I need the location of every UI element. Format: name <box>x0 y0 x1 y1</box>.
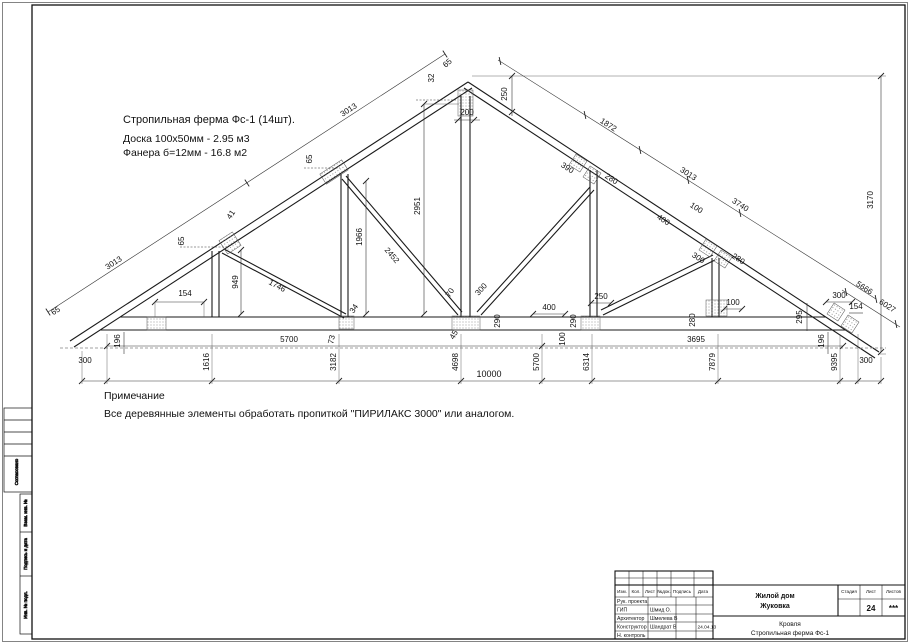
dim-label: 200 <box>460 108 474 117</box>
dim-label: 290 <box>493 314 502 328</box>
dim-label: 5666 <box>854 279 874 297</box>
dim-label: 7879 <box>708 353 717 371</box>
dim-label: 250 <box>500 87 509 101</box>
tb-role-3: Конструктор <box>617 625 647 631</box>
note-title: Примечание <box>104 390 165 402</box>
dim-label: 1872 <box>598 116 618 134</box>
dim-label: 400 <box>542 303 556 312</box>
dim-label: 65 <box>49 304 62 317</box>
dim-label: 2452 <box>383 246 402 266</box>
dim-label: 4698 <box>451 353 460 371</box>
dim-label: 949 <box>231 275 240 289</box>
tb-col-data: Дата <box>698 589 709 594</box>
tb-col-podpis: Подпись <box>673 589 692 594</box>
dim-label: 250 <box>594 292 608 301</box>
dim-label: 9395 <box>830 353 839 371</box>
dim-label: 100 <box>726 298 740 307</box>
dim-label: 65 <box>441 56 454 69</box>
dim-label: 300 <box>78 356 92 365</box>
title-block: Изм. Кол. Лист №док. Подпись Дата Рук. п… <box>615 571 905 639</box>
dim-label: 300 <box>473 281 489 297</box>
dim-label: 41 <box>225 208 238 221</box>
dim-label: 196 <box>113 334 122 348</box>
drawing-sheet: Согласовано Взам. инв. № Подпись и дата … <box>0 0 910 644</box>
tb-role-4: Н. контроль <box>617 633 646 639</box>
tb-name-1: Шмид О. <box>650 608 671 614</box>
margin-stamp-tables: Согласовано Взам. инв. № Подпись и дата … <box>4 408 32 634</box>
tb-project-line2: Жуковка <box>759 603 790 610</box>
tb-name-3: Шандрат В <box>650 625 677 631</box>
dim-label: 6027 <box>877 297 897 315</box>
tb-role-2: Архитектор <box>617 616 645 622</box>
note-body: Все деревянные элементы обработать пропи… <box>104 408 514 420</box>
dim-label: 3182 <box>329 353 338 371</box>
dim-label: 6314 <box>582 353 591 371</box>
dim-label: 295 <box>795 310 804 324</box>
dim-label: 3170 <box>866 191 875 209</box>
truss-drawing: Согласовано Взам. инв. № Подпись и дата … <box>0 0 910 644</box>
margin-label-agreed: Согласовано <box>14 458 19 485</box>
dim-label: 65 <box>177 236 186 245</box>
dim-label: 100 <box>558 332 567 346</box>
spec-note-line3: Фанера б=12мм - 16.8 м2 <box>123 147 247 159</box>
tb-sheets-total: *** <box>889 604 899 613</box>
tb-name-2: Шмелева В <box>650 616 678 622</box>
dim-label: 196 <box>817 334 826 348</box>
dim-label: 70 <box>444 286 457 299</box>
dim-label: 100 <box>688 200 705 215</box>
tb-col-izm: Изм. <box>617 589 627 594</box>
dim-label: 73 <box>326 334 337 345</box>
margin-label-podpis: Подпись и дата <box>23 538 28 570</box>
tb-stage-label: Стадия <box>841 589 857 594</box>
tb-role-0: Рук. проекта <box>617 599 647 605</box>
tb-col-ndok: №док. <box>657 589 670 594</box>
tb-drawing-line1: Кровля <box>779 621 801 628</box>
tb-date-3: 24.04.13 <box>698 625 717 631</box>
tb-role-1: ГИП <box>617 608 628 614</box>
dim-label: 154 <box>178 289 192 298</box>
spec-note-line1: Стропильная ферма Фс-1 (14шт). <box>123 114 295 126</box>
tb-sheet-label: Лист <box>866 589 877 594</box>
dim-label: 32 <box>427 73 436 82</box>
dim-label: 290 <box>569 314 578 328</box>
tb-drawing-line2: Стропильная ферма Фс-1 <box>751 630 830 637</box>
node-plates <box>147 90 859 333</box>
tb-col-list: Лист <box>645 589 656 594</box>
tb-sheets-label: Листов <box>886 589 901 594</box>
dim-label: 3013 <box>339 101 359 119</box>
dim-label: 300 <box>859 356 873 365</box>
dim-label: 1616 <box>202 353 211 371</box>
dim-label: 65 <box>305 154 314 163</box>
dimension-labels: 3013 3013 65 65 41 949 1746 65 1966 2452… <box>49 56 897 379</box>
dim-label: 5700 <box>532 353 541 371</box>
spec-note-line2: Доска 100х50мм - 2.95 м3 <box>123 133 250 145</box>
tb-col-kol: Кол. <box>631 589 640 594</box>
dim-label: 280 <box>603 171 620 186</box>
dim-label: 34 <box>348 302 361 315</box>
dim-label: 1746 <box>267 278 287 295</box>
dim-label: 2951 <box>413 197 422 215</box>
dim-label: 280 <box>688 313 697 327</box>
tb-project-line1: Жилой дом <box>754 592 794 600</box>
dim-label: 1966 <box>355 228 364 246</box>
margin-label-vzam: Взам. инв. № <box>23 499 28 526</box>
dim-label: 10000 <box>476 369 501 379</box>
dim-label: 3695 <box>687 335 705 344</box>
margin-label-inv: Инв. № подл. <box>23 591 28 618</box>
dim-label: 154 <box>849 302 863 311</box>
dim-label: 3740 <box>730 196 750 214</box>
tb-sheet-number: 24 <box>867 604 876 613</box>
dim-label: 5700 <box>280 335 298 344</box>
dim-label: 300 <box>832 291 846 300</box>
